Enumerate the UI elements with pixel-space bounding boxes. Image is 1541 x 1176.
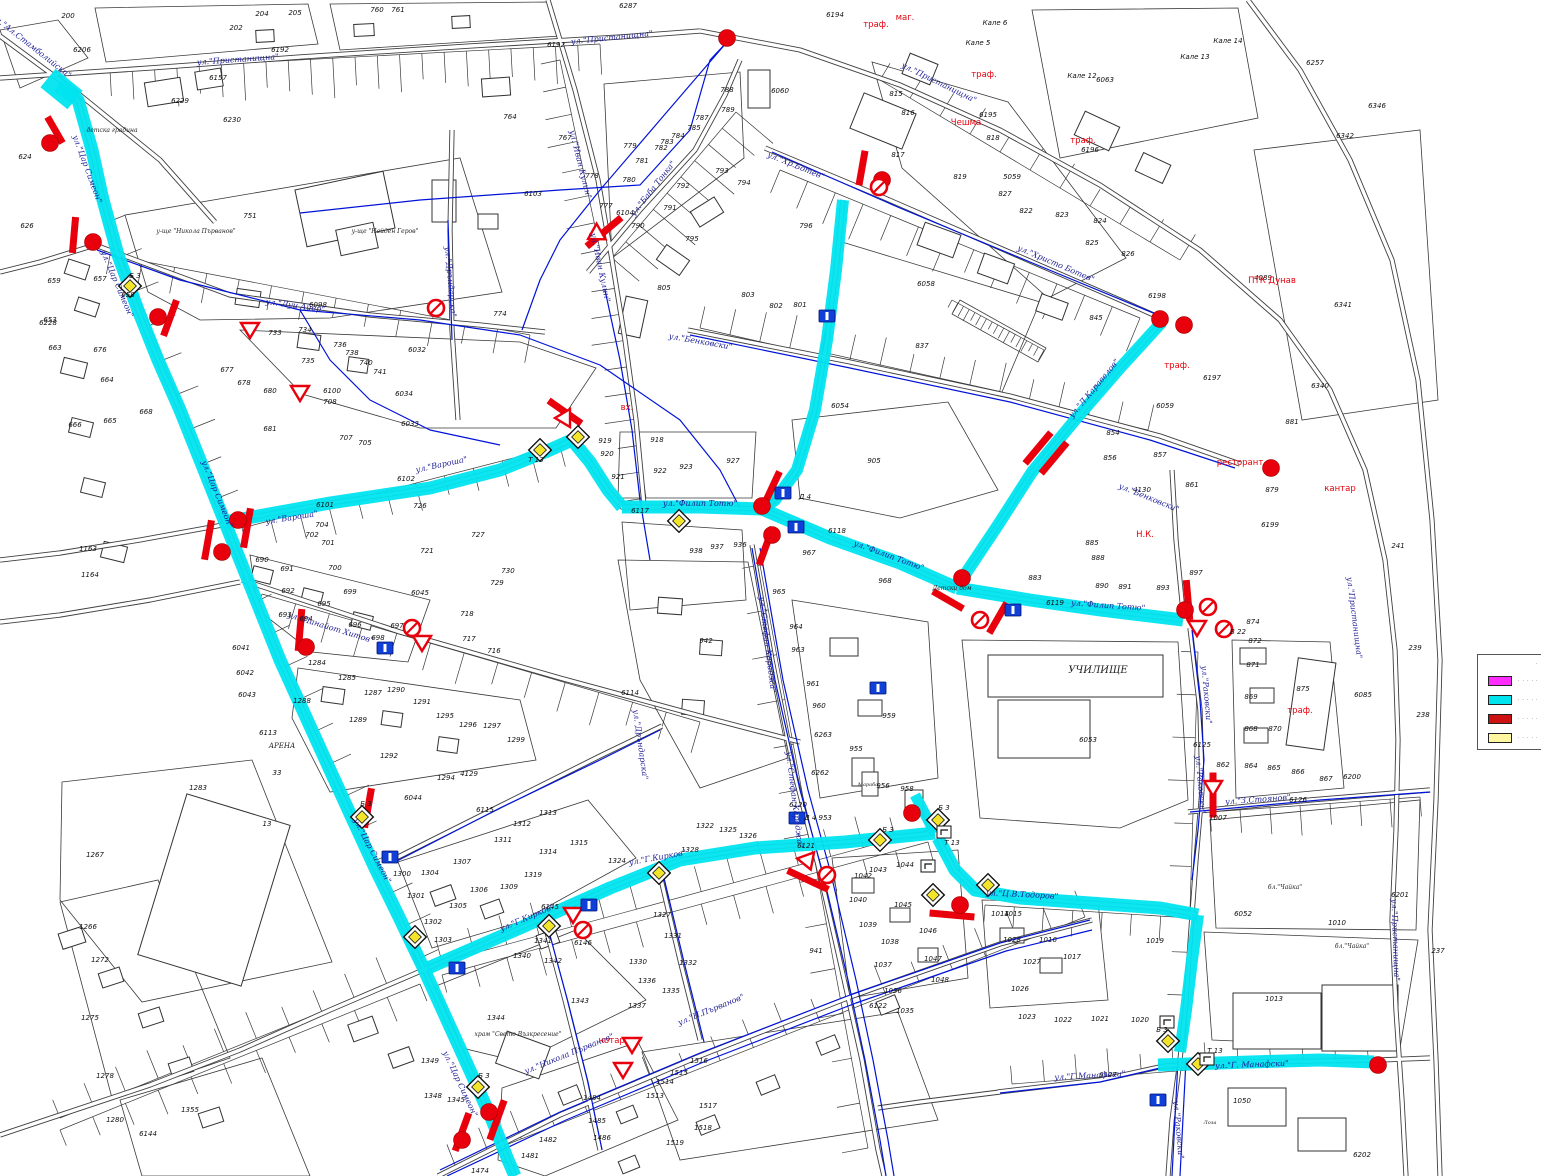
info-sign-marker [389, 853, 392, 861]
parcel-line [1148, 405, 1154, 430]
parcel-line [592, 341, 624, 346]
parcel-number-label: Т 13 [1207, 1047, 1222, 1055]
parcel-line [993, 325, 998, 334]
parcel-line [256, 1050, 265, 1073]
parcel-number-label: 33 [273, 769, 282, 777]
parcel-block [642, 1012, 938, 1160]
parcel-line [988, 322, 992, 329]
parcel-line [93, 1117, 100, 1135]
parcel-line [849, 335, 855, 362]
parcel-number-label: 726 [413, 502, 427, 510]
legend-header: · · · · [1488, 661, 1541, 671]
map-viewport[interactable]: 2002022042056206619261926246266228623062… [0, 0, 1541, 1176]
parcel-line [1174, 823, 1192, 824]
parcel-number-label: 6342 [1336, 132, 1354, 140]
parcel-number-label: 6196 [1081, 146, 1099, 154]
map-canvas[interactable]: 2002022042056206619261926246266228623062… [0, 0, 1541, 1176]
building [478, 214, 498, 229]
parcel-number-label: 1330 [629, 958, 647, 966]
parcel-line [1240, 810, 1242, 833]
street-name-label: ул."Луи Айер" [264, 297, 325, 314]
closure-bar-marker [856, 150, 869, 186]
building [1298, 1118, 1346, 1151]
parcel-line [557, 683, 565, 712]
parcel-number-label: 13 [263, 820, 272, 828]
parcel-number-label: 6032 [408, 346, 426, 354]
parcel-number-label: 818 [986, 134, 1000, 142]
parcel-line [524, 673, 531, 698]
parcel-number-label: 802 [769, 302, 783, 310]
parcel-line [1270, 808, 1272, 834]
parcel-number-label: 1343 [571, 997, 589, 1005]
parcel-line [376, 957, 387, 985]
parcel-number-label: 6146 [574, 939, 592, 947]
parcel-block [1254, 130, 1438, 420]
parcel-number-label: Т 13 [528, 456, 543, 464]
yield-sign-marker [564, 908, 582, 923]
parcel-number-label: 204 [255, 10, 268, 18]
building [1286, 658, 1336, 750]
parcel-number-label: 837 [915, 342, 929, 350]
parcel-line [266, 62, 267, 88]
parcel-line [691, 722, 700, 753]
parcel-number-label: 1319 [524, 871, 542, 879]
parcel-number-label: 6263 [814, 731, 832, 739]
parcel-number-label: 1039 [859, 921, 877, 929]
parcel-number-label: 6043 [238, 691, 256, 699]
street-name-label: ул."Пристанищна" [1390, 898, 1402, 981]
parcel-number-label: 4129 [460, 770, 478, 778]
poi-label: детска градина [86, 127, 138, 134]
parcel-number-label: 6192 [547, 41, 565, 49]
building [321, 687, 345, 705]
parcel-number-label: 5059 [1003, 173, 1021, 181]
parcel-number-label: 6113 [259, 729, 277, 737]
parcel-number-label: 1280 [106, 1116, 124, 1124]
parcel-number-label: 241 [1391, 542, 1404, 550]
parcel-line [600, 44, 602, 75]
info-sign-marker [456, 964, 459, 972]
parcel-line [734, 895, 741, 919]
parcel-number-label: 727 [471, 531, 485, 539]
parcel-number-label: 857 [1153, 451, 1167, 459]
parcel-line [224, 1064, 232, 1084]
parcel-number-label: 653 [43, 316, 56, 324]
parcel-number-label: 6045 [411, 589, 429, 597]
parcel-number-label: 824 [1093, 217, 1106, 225]
building [890, 908, 910, 922]
parcel-number-label: 1038 [881, 938, 899, 946]
parcel-line [1101, 912, 1102, 930]
parcel-number-label: 1518 [694, 1124, 712, 1132]
parcel-line [214, 1029, 223, 1052]
parcel-line [810, 969, 834, 974]
parcel-number-label: 867 [1319, 775, 1333, 783]
stop-sign-marker [719, 30, 736, 47]
building [98, 967, 124, 988]
parcel-number-label: 1163 [79, 545, 97, 553]
parcel-line [823, 193, 836, 224]
legend-item-magenta-route: · · · · · · · [1488, 671, 1541, 690]
parcel-line [722, 128, 754, 155]
parcel-number-label: 827 [998, 190, 1012, 198]
parcel-number-label: 697 [390, 622, 404, 630]
parcel-number-label: 1046 [919, 927, 937, 935]
yield-sign-marker [413, 636, 431, 651]
stop-sign-marker [42, 135, 59, 152]
parcel-line [507, 957, 514, 981]
building [481, 77, 510, 97]
parcel-line [333, 58, 335, 98]
parcel-number-label: 881 [1285, 418, 1298, 426]
parcel-number-label: 6034 [395, 390, 413, 398]
parcel-number-label: 680 [263, 387, 277, 395]
parcel-number-label: 678 [237, 379, 251, 387]
blue-line [395, 730, 660, 862]
parcel-number-label: 1515 [670, 1069, 688, 1077]
parcel-number-label: 6287 [619, 2, 637, 10]
parcel-number-label: 1314 [539, 848, 557, 856]
parcel-number-label: 787 [695, 114, 709, 122]
parcel-line [541, 60, 560, 64]
parcel-number-label: 659 [47, 277, 61, 285]
parcel-number-label: 923 [679, 463, 692, 471]
parcel-number-label: 1010 [1328, 919, 1346, 927]
parcel-number-label: 6198 [1148, 292, 1166, 300]
parcel-number-label: 6118 [828, 527, 846, 535]
parcel-number-label: 1306 [470, 886, 488, 894]
parcel-number-label: 919 [598, 437, 612, 445]
parcel-number-label: 6033 [401, 420, 419, 428]
parcel-number-label: 200 [61, 12, 75, 20]
parcel-number-label: 1291 [413, 698, 431, 706]
parcel-number-label: 890 [1095, 582, 1109, 590]
parcel-number-label: 959 [882, 712, 896, 720]
poi-label: Лоза [1203, 1120, 1217, 1126]
poi-red-label: траф. [1164, 361, 1190, 371]
parcel-number-label: 6230 [223, 116, 241, 124]
parcel-number-label: 729 [490, 579, 504, 587]
parcel-line [289, 1037, 295, 1053]
stop-sign-marker [454, 1132, 471, 1149]
parcel-number-label: 6197 [1203, 374, 1221, 382]
parcel-number-label: 956 [876, 782, 890, 790]
parcel-number-label: 874 [1246, 618, 1259, 626]
map-legend: · · · · · · · · · · ·· · · · · ·· · · · … [1477, 654, 1541, 750]
info-sign-marker [1157, 1096, 1160, 1104]
parcel-number-label: 705 [358, 439, 372, 447]
parcel-number-label: 1037 [874, 961, 892, 969]
building [496, 1031, 551, 1079]
parcel-number-label: 1015 [1004, 910, 1022, 918]
aux-sign-marker [937, 826, 951, 838]
parcel-number-label: 1313 [539, 809, 557, 817]
parcel-number-label: 1292 [380, 752, 398, 760]
parcel-line [84, 1083, 93, 1104]
info-sign-marker [795, 523, 798, 531]
yield-sign-marker [291, 386, 309, 401]
parcel-number-label: 826 [1121, 250, 1135, 258]
parcel-number-label: 918 [650, 436, 664, 444]
parcel-line [313, 991, 322, 1012]
parcel-number-label: 1349 [421, 1057, 439, 1065]
blue-line [760, 548, 894, 1176]
building [1228, 1088, 1286, 1126]
parcel-number-label: 1514 [656, 1078, 674, 1086]
parcel-number-label: 1341 [534, 937, 552, 945]
poi-red-label: траф. [863, 20, 889, 30]
parcel-number-label: 6052 [1234, 910, 1252, 918]
parcel-number-label: 785 [687, 124, 701, 132]
parcel-number-label: 936 [733, 541, 747, 549]
street-name-label: ул."Дръндарска" [631, 708, 650, 780]
street-name-label: ул."Пристанищна" [899, 60, 978, 105]
stop-sign-marker [1177, 602, 1194, 619]
building [381, 711, 403, 728]
parcel-line [511, 49, 513, 77]
parcel-number-label: 695 [317, 600, 331, 608]
parcel-number-label: 942 [699, 637, 713, 645]
parcel-number-label: 1040 [849, 896, 867, 904]
parcel-number-label: 663 [48, 344, 61, 352]
info-sign-marker [1012, 606, 1015, 614]
parcel-number-label: 779 [623, 142, 637, 150]
parcel-number-label: 238 [1416, 711, 1430, 719]
route-highlight [957, 588, 1183, 620]
parcel-number-label: 1331 [664, 932, 682, 940]
parcel-number-label: 1035 [896, 1007, 914, 1015]
parcel-number-label: 1164 [81, 571, 99, 579]
poi-label: у-ще "Никола Първанов" [155, 228, 236, 235]
parcel-number-label: 795 [685, 235, 699, 243]
street-name-label: ул."Г. Манафски" [1214, 1059, 1289, 1071]
poi-label: УЧИЛИЩЕ [1068, 665, 1128, 676]
parcel-number-label: 691 [280, 565, 293, 573]
parcel-line [422, 53, 423, 79]
parcel-number-label: 1301 [407, 892, 425, 900]
parcel-number-label: 699 [343, 588, 357, 596]
parcel-number-label: 1485 [588, 1117, 606, 1125]
parcel-number-label: 816 [901, 109, 915, 117]
parcel-number-label: 1299 [507, 736, 525, 744]
parcel-number-label: 665 [103, 417, 117, 425]
stop-sign-marker [954, 570, 971, 587]
blue-line [300, 310, 500, 445]
parcel-number-label: 1481 [521, 1152, 539, 1160]
parcel-number-label: 751 [243, 212, 256, 220]
legend-item-red-route: · · · · · · [1488, 709, 1541, 728]
parcel-number-label: Кале 6 [983, 19, 1008, 27]
parcel-number-label: Кале 5 [966, 39, 991, 47]
street-name-label: ул."Пристанищна" [569, 29, 653, 47]
parcel-block [622, 522, 746, 610]
parcel-line [396, 310, 401, 336]
parcel-line [771, 170, 780, 193]
parcel-number-label: 6059 [1156, 402, 1174, 410]
parcel-number-label: 823 [1055, 211, 1068, 219]
parcel-number-label: 6194 [826, 11, 844, 19]
parcel-number-label: 708 [323, 398, 337, 406]
stop-sign-marker [1263, 460, 1280, 477]
parcel-number-label: 781 [635, 157, 648, 165]
parcel-line [543, 87, 566, 92]
parcel-number-label: 869 [1244, 693, 1258, 701]
legend-label: · · · · · · [1518, 735, 1541, 740]
parcel-number-label: 6341 [1334, 301, 1352, 309]
parcel-number-label: 1304 [421, 869, 439, 877]
stop-sign-marker [85, 234, 102, 251]
building [138, 1007, 164, 1028]
parcel-line [244, 63, 246, 101]
parcel-number-label: 734 [298, 326, 311, 334]
poi-red-label: вх. [621, 403, 634, 413]
parcel-line [1058, 382, 1064, 409]
parcel-line [1360, 801, 1362, 826]
parcel-number-label: 905 [867, 457, 881, 465]
parcel-line [1168, 780, 1194, 781]
parcel-number-label: 730 [501, 567, 515, 575]
parcel-line [879, 338, 886, 369]
parcel-line [1118, 402, 1123, 424]
parcel-number-label: 1290 [387, 686, 405, 694]
parcel-number-label: 897 [1189, 569, 1203, 577]
street-name-label: ул."Н.Първанов" [676, 992, 746, 1027]
parcel-number-label: 1326 [739, 832, 757, 840]
poi-red-label: ресторант [1217, 458, 1264, 468]
building [852, 878, 874, 893]
parcel-number-label: 1050 [1233, 1097, 1251, 1105]
parcel-number-label: 677 [220, 366, 234, 374]
parcel-number-label: 822 [1019, 207, 1033, 215]
parcel-number-label: 968 [878, 577, 892, 585]
parcel-number-label: 6126 [1289, 796, 1307, 804]
parcel-number-label: 1027 [1023, 958, 1041, 966]
parcel-number-label: 891 [1118, 583, 1131, 591]
parcel-number-label: 692 [281, 587, 295, 595]
info-sign-marker [384, 644, 387, 652]
parcel-number-label: 871 [1246, 661, 1259, 669]
parcel-number-label: 704 [315, 521, 328, 529]
parcel-number-label: 868 [1244, 725, 1258, 733]
parcel-number-label: 1272 [91, 956, 109, 964]
parcel-number-label: 1284 [308, 659, 326, 667]
building [64, 259, 90, 280]
poi-red-label: ПТК Дунав [1248, 276, 1296, 286]
parcel-line [147, 1050, 158, 1078]
parcel-number-label: 793 [715, 167, 728, 175]
legend-swatch-red-route [1488, 714, 1512, 724]
poi-label: Детски дом [931, 585, 971, 592]
parcel-number-label: 1340 [513, 952, 531, 960]
parcel-number-label: 1482 [539, 1136, 557, 1144]
parcel-number-label: 1335 [662, 987, 680, 995]
parcel-number-label: 733 [268, 329, 281, 337]
parcel-number-label: 964 [789, 623, 802, 631]
building [1040, 958, 1062, 973]
parcel-line [282, 1007, 289, 1025]
parcel-line [163, 353, 181, 360]
parcel-line [345, 785, 369, 796]
road-casing [688, 330, 1240, 464]
parcel-number-label: 702 [305, 531, 319, 539]
info-sign-marker [826, 312, 829, 320]
poi-label: храм "Свето Възкресение" [475, 1031, 562, 1038]
stop-sign-marker [298, 639, 315, 656]
parcel-number-label: 938 [689, 547, 703, 555]
parcel-number-label: 690 [255, 556, 269, 564]
parcel-number-label: 1296 [459, 721, 477, 729]
parcel-number-label: 6117 [631, 507, 649, 515]
parcel-line [1016, 338, 1021, 347]
parcel-line [736, 112, 773, 143]
parcel-line [177, 386, 198, 395]
parcel-line [953, 303, 958, 312]
parcel-number-label: 1348 [424, 1092, 442, 1100]
parcel-number-label: 6041 [232, 644, 250, 652]
parcel-number-label: 1355 [181, 1106, 199, 1114]
parcel-number-label: 717 [462, 635, 476, 643]
parcel-number-label: 6101 [316, 501, 334, 509]
parcel-number-label: 1267 [86, 851, 104, 859]
parcel-number-label: 862 [1216, 761, 1230, 769]
parcel-number-label: 1285 [338, 674, 356, 682]
parcel-number-label: 1036 [884, 987, 902, 995]
poi-label: у-ще "Найден Геров" [351, 228, 419, 235]
parcel-number-label: 819 [953, 173, 967, 181]
parcel-number-label: 6201 [1391, 891, 1409, 899]
legend-item-cyan-route: · · · · · · [1488, 690, 1541, 709]
stop-sign-marker [481, 1104, 498, 1121]
parcel-number-label: 738 [345, 349, 359, 357]
parcel-line [849, 204, 863, 239]
parcel-line [958, 306, 963, 316]
info-sign-marker [588, 901, 591, 909]
parcel-number-label: 700 [328, 564, 342, 572]
parcel-number-label: 791 [663, 204, 676, 212]
parcel-number-label: 6202 [1353, 1151, 1371, 1159]
parcel-line [695, 161, 734, 195]
parcel-line [191, 1077, 198, 1094]
parcel-number-label: 6102 [397, 475, 415, 483]
parcel-number-label: 920 [600, 450, 614, 458]
parcel-number-label: 805 [657, 284, 671, 292]
parcel-number-label: 760 [370, 6, 384, 14]
parcel-line [1390, 799, 1392, 827]
parcel-number-label: 740 [359, 359, 373, 367]
parcel-line [700, 306, 705, 328]
parcel-number-label: 1517 [699, 1102, 717, 1110]
parcel-number-label: 6054 [831, 402, 849, 410]
parcel-number-label: 6206 [73, 46, 91, 54]
parcel-number-label: 6157 [209, 74, 227, 82]
parcel-line [708, 144, 735, 167]
parcel-number-label: 6063 [1096, 76, 1114, 84]
parcel-line [1016, 272, 1029, 303]
parcel-number-label: 6122 [869, 1002, 887, 1010]
road-surface [688, 330, 1240, 464]
parcel-line [1011, 1066, 1012, 1084]
parcel-number-label: Кале 12 [1067, 72, 1097, 80]
parcel-line [110, 70, 111, 96]
parcel-line [730, 309, 736, 334]
parcel-number-label: 861 [1185, 481, 1198, 489]
parcel-line [976, 316, 981, 325]
building [354, 23, 375, 36]
parcel-number-label: 6044 [404, 794, 422, 802]
parcel-number-label: Б 3 [360, 800, 371, 808]
legend-item-yellow-route: · · · · · · [1488, 728, 1541, 747]
parcel-number-label: 718 [460, 610, 474, 618]
